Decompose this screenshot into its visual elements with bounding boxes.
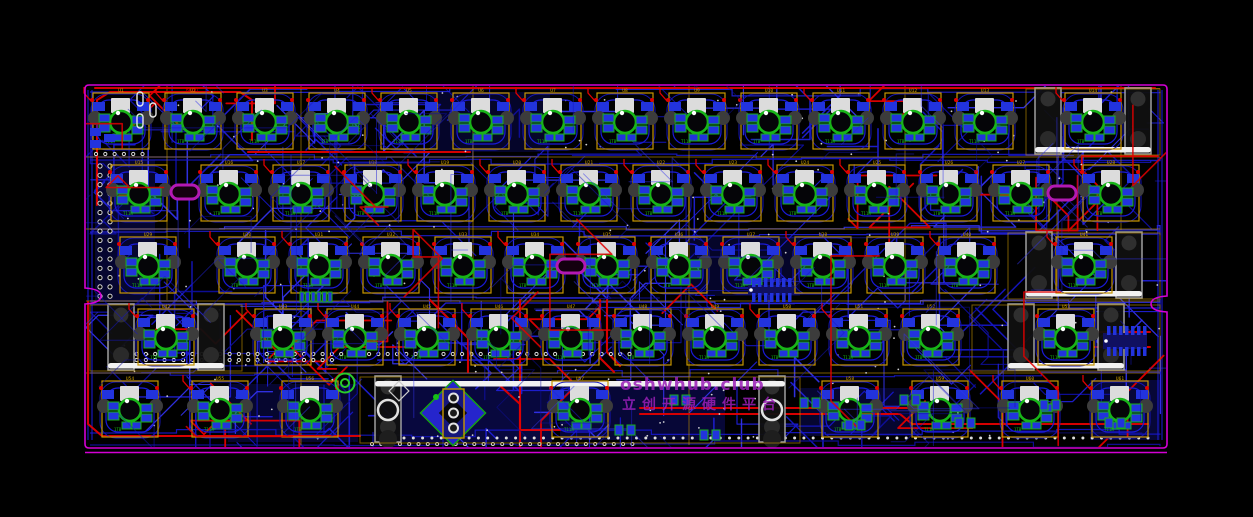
key-designator: U21: [585, 160, 594, 166]
key-designator: U7: [550, 88, 556, 94]
key-designator: U24: [801, 160, 810, 166]
switch-footprint-U50[interactable]: U501TB: [750, 303, 820, 366]
key-designator: U15: [135, 160, 144, 166]
footprint-inner-label: 1TB: [753, 139, 761, 144]
switch-footprint-U41[interactable]: U41T11N: [1008, 231, 1160, 299]
footprint-inner-label: 1TB: [357, 211, 365, 216]
key-designator: U25: [873, 160, 882, 166]
switch-footprint-U51[interactable]: U51T11N: [822, 303, 892, 366]
switch-center-hole: [182, 111, 204, 133]
key-designator: U6: [478, 88, 484, 94]
footprint-inner-label: T11N: [537, 139, 547, 144]
switch-footprint-U25[interactable]: U25T11N: [840, 159, 910, 222]
footprint-inner-label: T11N: [825, 139, 835, 144]
switch-center-hole: [830, 111, 852, 133]
switch-footprint-U31[interactable]: U31T11N: [282, 231, 352, 294]
switch-center-hole: [632, 327, 654, 349]
key-designator: U42: [162, 304, 171, 310]
footprint-inner-label: 1TB: [663, 283, 671, 288]
switch-footprint-U18[interactable]: U181TB: [340, 160, 406, 222]
key-designator: U44: [351, 304, 360, 310]
key-designator: U22: [657, 160, 666, 166]
key-designator: U28: [1107, 160, 1116, 166]
key-designator: U57: [576, 376, 585, 382]
switch-center-hole: [668, 255, 690, 277]
footprint-inner-label: T11N: [735, 283, 745, 288]
key-designator: U8: [622, 88, 628, 94]
footprint-inner-label: 1TB: [834, 427, 842, 432]
footprint-inner-label: T11N: [564, 427, 574, 432]
key-designator: U3: [262, 88, 268, 94]
switch-center-hole: [596, 255, 618, 277]
key-designator: U58: [846, 376, 855, 382]
switch-footprint-U20[interactable]: U201TB: [480, 159, 550, 222]
connector-pad: [300, 292, 304, 302]
switch-footprint-U33[interactable]: U33T11N: [430, 232, 496, 294]
key-designator: U27: [1017, 160, 1026, 166]
ic-footprint[interactable]: [1103, 326, 1147, 356]
key-designator: U29: [144, 232, 153, 238]
footprint-inner-label: T11N: [123, 211, 133, 216]
key-designator: U55: [216, 376, 225, 382]
key-designator: U14: [1089, 88, 1098, 94]
footprint-inner-label: 1TB: [177, 139, 185, 144]
footprint-inner-label: T11N: [555, 355, 565, 360]
switch-footprint-U26[interactable]: U261TB: [916, 160, 982, 222]
key-designator: U9: [694, 88, 700, 94]
pcb-editor-viewport[interactable]: U1T11NU21TBU3T11NU41TBU5T11NU61TBU7T11NU…: [0, 0, 1253, 517]
key-designator: U50: [783, 304, 792, 310]
footprint-inner-label: T11N: [285, 211, 295, 216]
key-designator: U35: [603, 232, 612, 238]
key-designator: U59: [936, 376, 945, 382]
footprint-inner-label: T11N: [411, 355, 421, 360]
key-designator: U49: [711, 304, 720, 310]
switch-center-hole: [398, 111, 420, 133]
footprint-inner-label: 1TB: [1014, 427, 1022, 432]
switch-footprint-U47[interactable]: U47T11N: [538, 304, 604, 366]
switch-center-hole: [524, 255, 546, 277]
footprint-inner-label: 1TB: [150, 355, 158, 360]
watermark-line2: 立创开源硬件平台: [622, 396, 782, 413]
key-designator: U31: [315, 232, 324, 238]
switch-center-hole: [137, 255, 159, 277]
footprint-inner-label: T11N: [1050, 355, 1060, 360]
switch-footprint-U8[interactable]: U81TB: [588, 87, 658, 150]
switch-center-hole: [848, 327, 870, 349]
key-designator: U30: [243, 232, 252, 238]
switch-center-hole: [758, 111, 780, 133]
switch-center-hole: [614, 111, 636, 133]
connector-pad: [328, 292, 332, 302]
key-designator: U46: [495, 304, 504, 310]
switch-center-hole: [110, 111, 132, 133]
key-designator: U54: [126, 376, 135, 382]
switch-center-hole: [380, 255, 402, 277]
switch-footprint-U32[interactable]: U321TB: [358, 232, 424, 294]
key-designator: U39: [891, 232, 900, 238]
footprint-inner-label: T11N: [699, 355, 709, 360]
footprint-inner-label: T11N: [429, 211, 439, 216]
switch-footprint-U4[interactable]: U41TB: [304, 88, 370, 150]
switch-center-hole: [920, 327, 942, 349]
switch-center-hole: [1100, 183, 1122, 205]
key-designator: U38: [819, 232, 828, 238]
key-designator: U17: [297, 160, 306, 166]
switch-center-hole: [884, 255, 906, 277]
connector-pad: [311, 292, 315, 302]
key-designator: U45: [423, 304, 432, 310]
switch-center-hole: [362, 183, 384, 205]
switch-center-hole: [326, 111, 348, 133]
switch-footprint-U19[interactable]: U19T11N: [408, 159, 478, 222]
footprint-inner-label: T11N: [447, 283, 457, 288]
footprint-inner-label: 1TB: [951, 283, 959, 288]
key-designator: U13: [981, 88, 990, 94]
connector-pad: [322, 292, 326, 302]
key-designator: U26: [945, 160, 954, 166]
switch-footprint-U13[interactable]: U13T11N: [952, 88, 1018, 150]
switch-center-hole: [272, 327, 294, 349]
reset-label: RESET: [186, 87, 199, 92]
switch-center-hole: [470, 111, 492, 133]
footprint-inner-label: 1TB: [789, 211, 797, 216]
footprint-inner-label: 1TB: [771, 355, 779, 360]
key-designator: U16: [225, 160, 234, 166]
switch-footprint-U2[interactable]: U21TB: [156, 87, 226, 150]
footprint-inner-label: T11N: [1005, 211, 1015, 216]
switch-center-hole: [929, 399, 951, 421]
pcb-board-canvas[interactable]: U1T11NU21TBU3T11NU41TBU5T11NU61TBU7T11NU…: [0, 0, 1253, 517]
switch-footprint-U27[interactable]: U27T11N: [988, 160, 1054, 222]
footprint-inner-label: 1TB: [114, 427, 122, 432]
switch-center-hole: [218, 183, 240, 205]
footprint-inner-label: 1TB: [1095, 211, 1103, 216]
switch-footprint-U3[interactable]: U3T11N: [232, 88, 298, 150]
switch-center-hole: [956, 255, 978, 277]
footprint-inner-label: 1TB: [339, 355, 347, 360]
switch-center-hole: [1010, 183, 1032, 205]
footprint-inner-label: 1TB: [213, 211, 221, 216]
switch-footprint-U24[interactable]: U241TB: [768, 159, 838, 222]
slot-cutout: [171, 185, 199, 199]
switch-center-hole: [290, 183, 312, 205]
key-designator: U12: [909, 88, 918, 94]
switch-center-hole: [155, 327, 177, 349]
key-designator: U5: [406, 88, 412, 94]
switch-center-hole: [866, 183, 888, 205]
switch-center-hole: [740, 255, 762, 277]
footprint-inner-label: T11N: [249, 139, 259, 144]
footprint-inner-label: T11N: [267, 355, 277, 360]
key-designator: U34: [531, 232, 540, 238]
watermark: oshwhub.club立创开源硬件平台: [620, 375, 782, 413]
switch-center-hole: [938, 183, 960, 205]
switch-center-hole: [488, 327, 510, 349]
footprint-inner-label: 1TB: [465, 139, 473, 144]
footprint-inner-label: 1TB: [915, 355, 923, 360]
switch-footprint-U14[interactable]: U141TB: [1026, 87, 1160, 155]
key-designator: U10: [765, 88, 774, 94]
slot-cutout: [1048, 186, 1076, 200]
switch-center-hole: [434, 183, 456, 205]
footprint-inner-label: T11N: [303, 283, 313, 288]
footprint-inner-label: 1TB: [645, 211, 653, 216]
key-designator: U53: [1062, 304, 1071, 310]
watermark-line1: oshwhub.club: [620, 375, 765, 395]
switch-center-hole: [542, 111, 564, 133]
key-designator: U37: [747, 232, 756, 238]
switch-footprint-U12[interactable]: U121TB: [880, 88, 946, 150]
key-designator: U43: [279, 304, 288, 310]
footprint-inner-label: T11N: [591, 283, 601, 288]
footprint-inner-label: 1TB: [519, 283, 527, 288]
footprint-inner-label: T11N: [861, 211, 871, 216]
switch-center-hole: [308, 255, 330, 277]
footprint-inner-label: T11N: [879, 283, 889, 288]
key-designator: U56: [306, 376, 315, 382]
switch-center-hole: [1082, 111, 1104, 133]
key-designator: U19: [441, 160, 450, 166]
switch-center-hole: [1019, 399, 1041, 421]
footprint-inner-label: T11N: [717, 211, 727, 216]
switch-center-hole: [344, 327, 366, 349]
footprint-inner-label: 1TB: [627, 355, 635, 360]
switch-center-hole: [902, 111, 924, 133]
footprint-inner-label: T11N: [573, 211, 583, 216]
footprint-inner-label: 1TB: [483, 355, 491, 360]
switch-footprint-U54[interactable]: U541TB: [97, 376, 163, 438]
key-designator: U40: [963, 232, 972, 238]
key-designator: U61: [1116, 376, 1125, 382]
switch-center-hole: [722, 183, 744, 205]
switch-center-hole: [704, 327, 726, 349]
switch-center-hole: [209, 399, 231, 421]
switch-center-hole: [506, 183, 528, 205]
footprint-inner-label: 1TB: [375, 283, 383, 288]
key-designator: U33: [459, 232, 468, 238]
slot-cutout: [557, 259, 585, 273]
footprint-inner-label: T11N: [1068, 283, 1078, 288]
key-designator: U11: [837, 88, 846, 94]
footprint-inner-label: 1TB: [1077, 139, 1085, 144]
switch-center-hole: [686, 111, 708, 133]
footprint-inner-label: 1TB: [933, 211, 941, 216]
switch-center-hole: [776, 327, 798, 349]
switch-center-hole: [452, 255, 474, 277]
footprint-inner-label: T11N: [924, 427, 934, 432]
switch-footprint-U23[interactable]: U23T11N: [696, 159, 766, 222]
footprint-inner-label: T11N: [132, 283, 142, 288]
switch-center-hole: [1055, 327, 1077, 349]
switch-center-hole: [1073, 255, 1095, 277]
connector-pad: [317, 292, 321, 302]
switch-footprint-U48[interactable]: U481TB: [610, 304, 676, 366]
switch-center-hole: [974, 111, 996, 133]
footprint-inner-label: 1TB: [609, 139, 617, 144]
key-designator: U41: [1080, 232, 1089, 238]
key-designator: U23: [729, 160, 738, 166]
key-designator: U48: [639, 304, 648, 310]
connector-pad: [306, 292, 310, 302]
key-designator: U1: [118, 88, 124, 94]
footprint-inner-label: 1TB: [897, 139, 905, 144]
switch-center-hole: [299, 399, 321, 421]
key-designator: U36: [675, 232, 684, 238]
switch-footprint-U16[interactable]: U161TB: [196, 160, 262, 222]
switch-center-hole: [794, 183, 816, 205]
footprint-inner-label: 1TB: [294, 427, 302, 432]
switch-footprint-U39[interactable]: U39T11N: [862, 232, 928, 294]
switch-center-hole: [128, 183, 150, 205]
key-designator: U60: [1026, 376, 1035, 382]
switch-center-hole: [650, 183, 672, 205]
footprint-inner-label: T11N: [204, 427, 214, 432]
footprint-inner-label: T11N: [843, 355, 853, 360]
key-designator: U20: [513, 160, 522, 166]
footprint-inner-label: 1TB: [501, 211, 509, 216]
footprint-inner-label: 1TB: [807, 283, 815, 288]
switch-footprint-U9[interactable]: U9T11N: [660, 87, 730, 150]
footprint-inner-label: T11N: [681, 139, 691, 144]
key-designator: U4: [334, 88, 340, 94]
